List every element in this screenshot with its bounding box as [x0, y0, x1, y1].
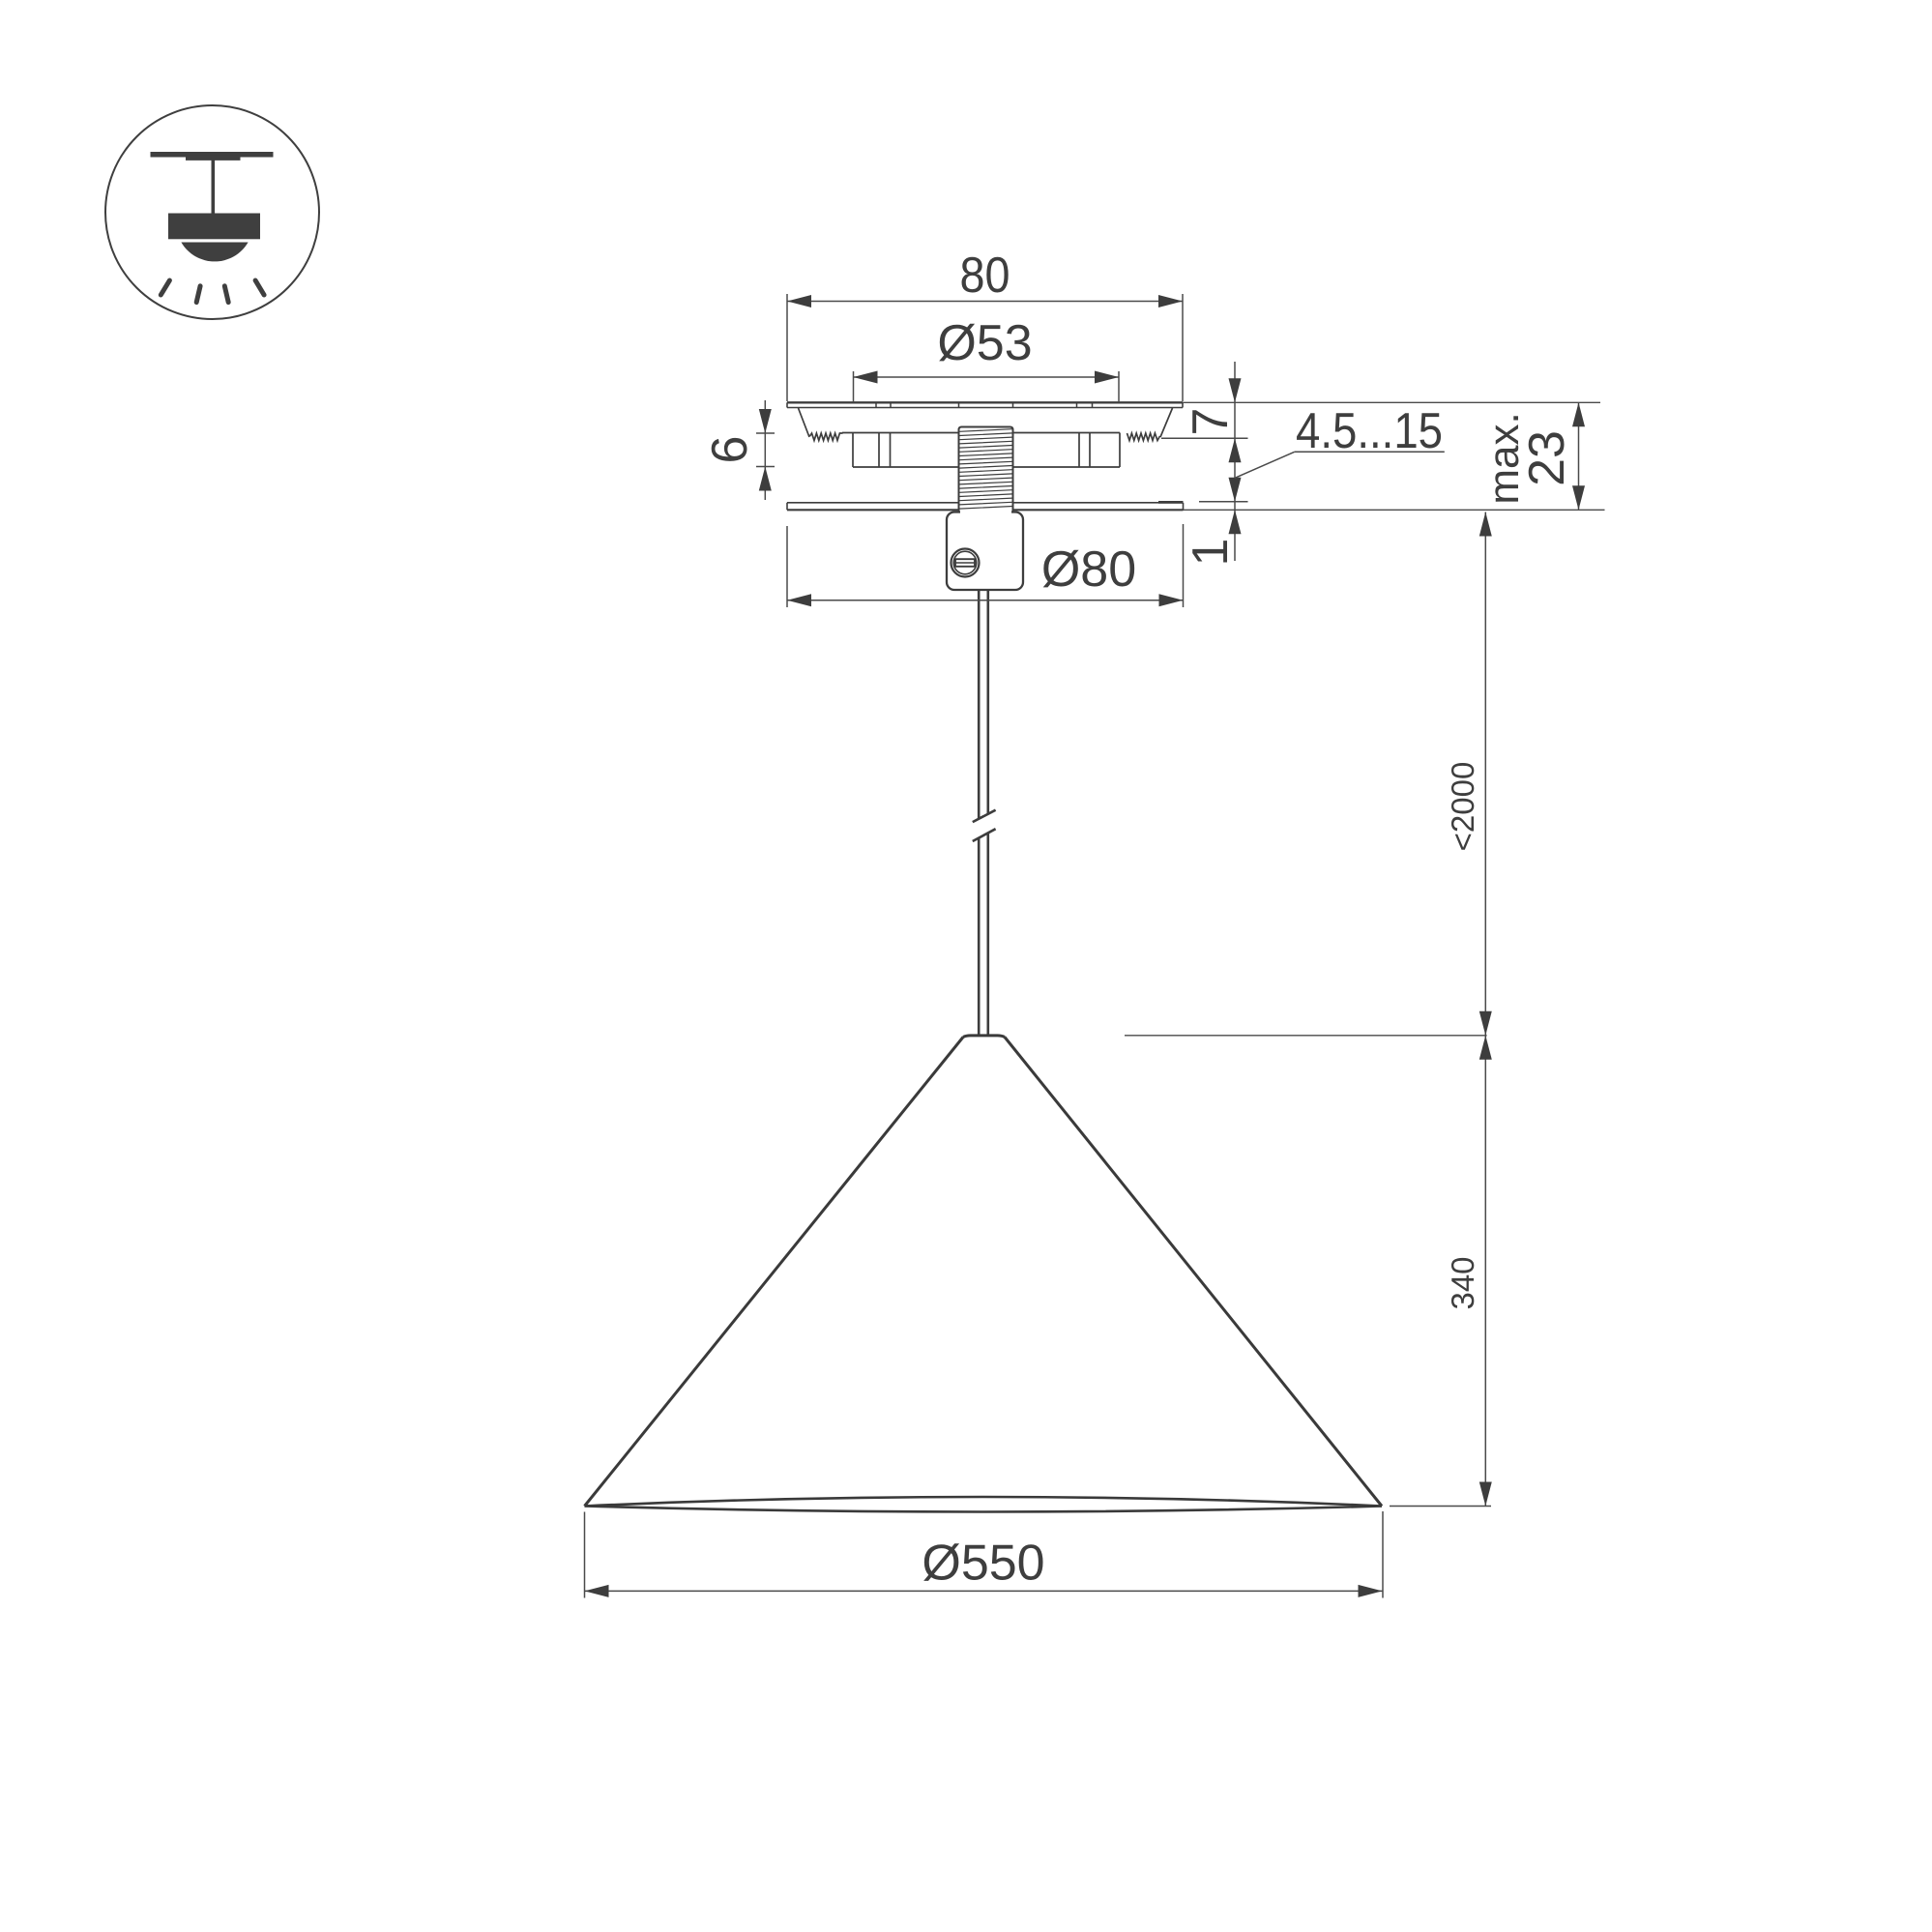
svg-text:<2000: <2000 — [1445, 762, 1480, 852]
svg-text:Ø53: Ø53 — [937, 315, 1032, 371]
svg-text:Ø550: Ø550 — [922, 1535, 1044, 1591]
svg-text:340: 340 — [1445, 1256, 1480, 1309]
svg-text:7: 7 — [1183, 408, 1239, 436]
svg-text:23: 23 — [1519, 430, 1575, 486]
svg-text:Ø80: Ø80 — [1041, 542, 1136, 598]
svg-text:1: 1 — [1183, 539, 1239, 567]
svg-text:6: 6 — [702, 436, 758, 464]
svg-text:4.5...15: 4.5...15 — [1296, 403, 1443, 459]
svg-text:80: 80 — [960, 248, 1010, 304]
